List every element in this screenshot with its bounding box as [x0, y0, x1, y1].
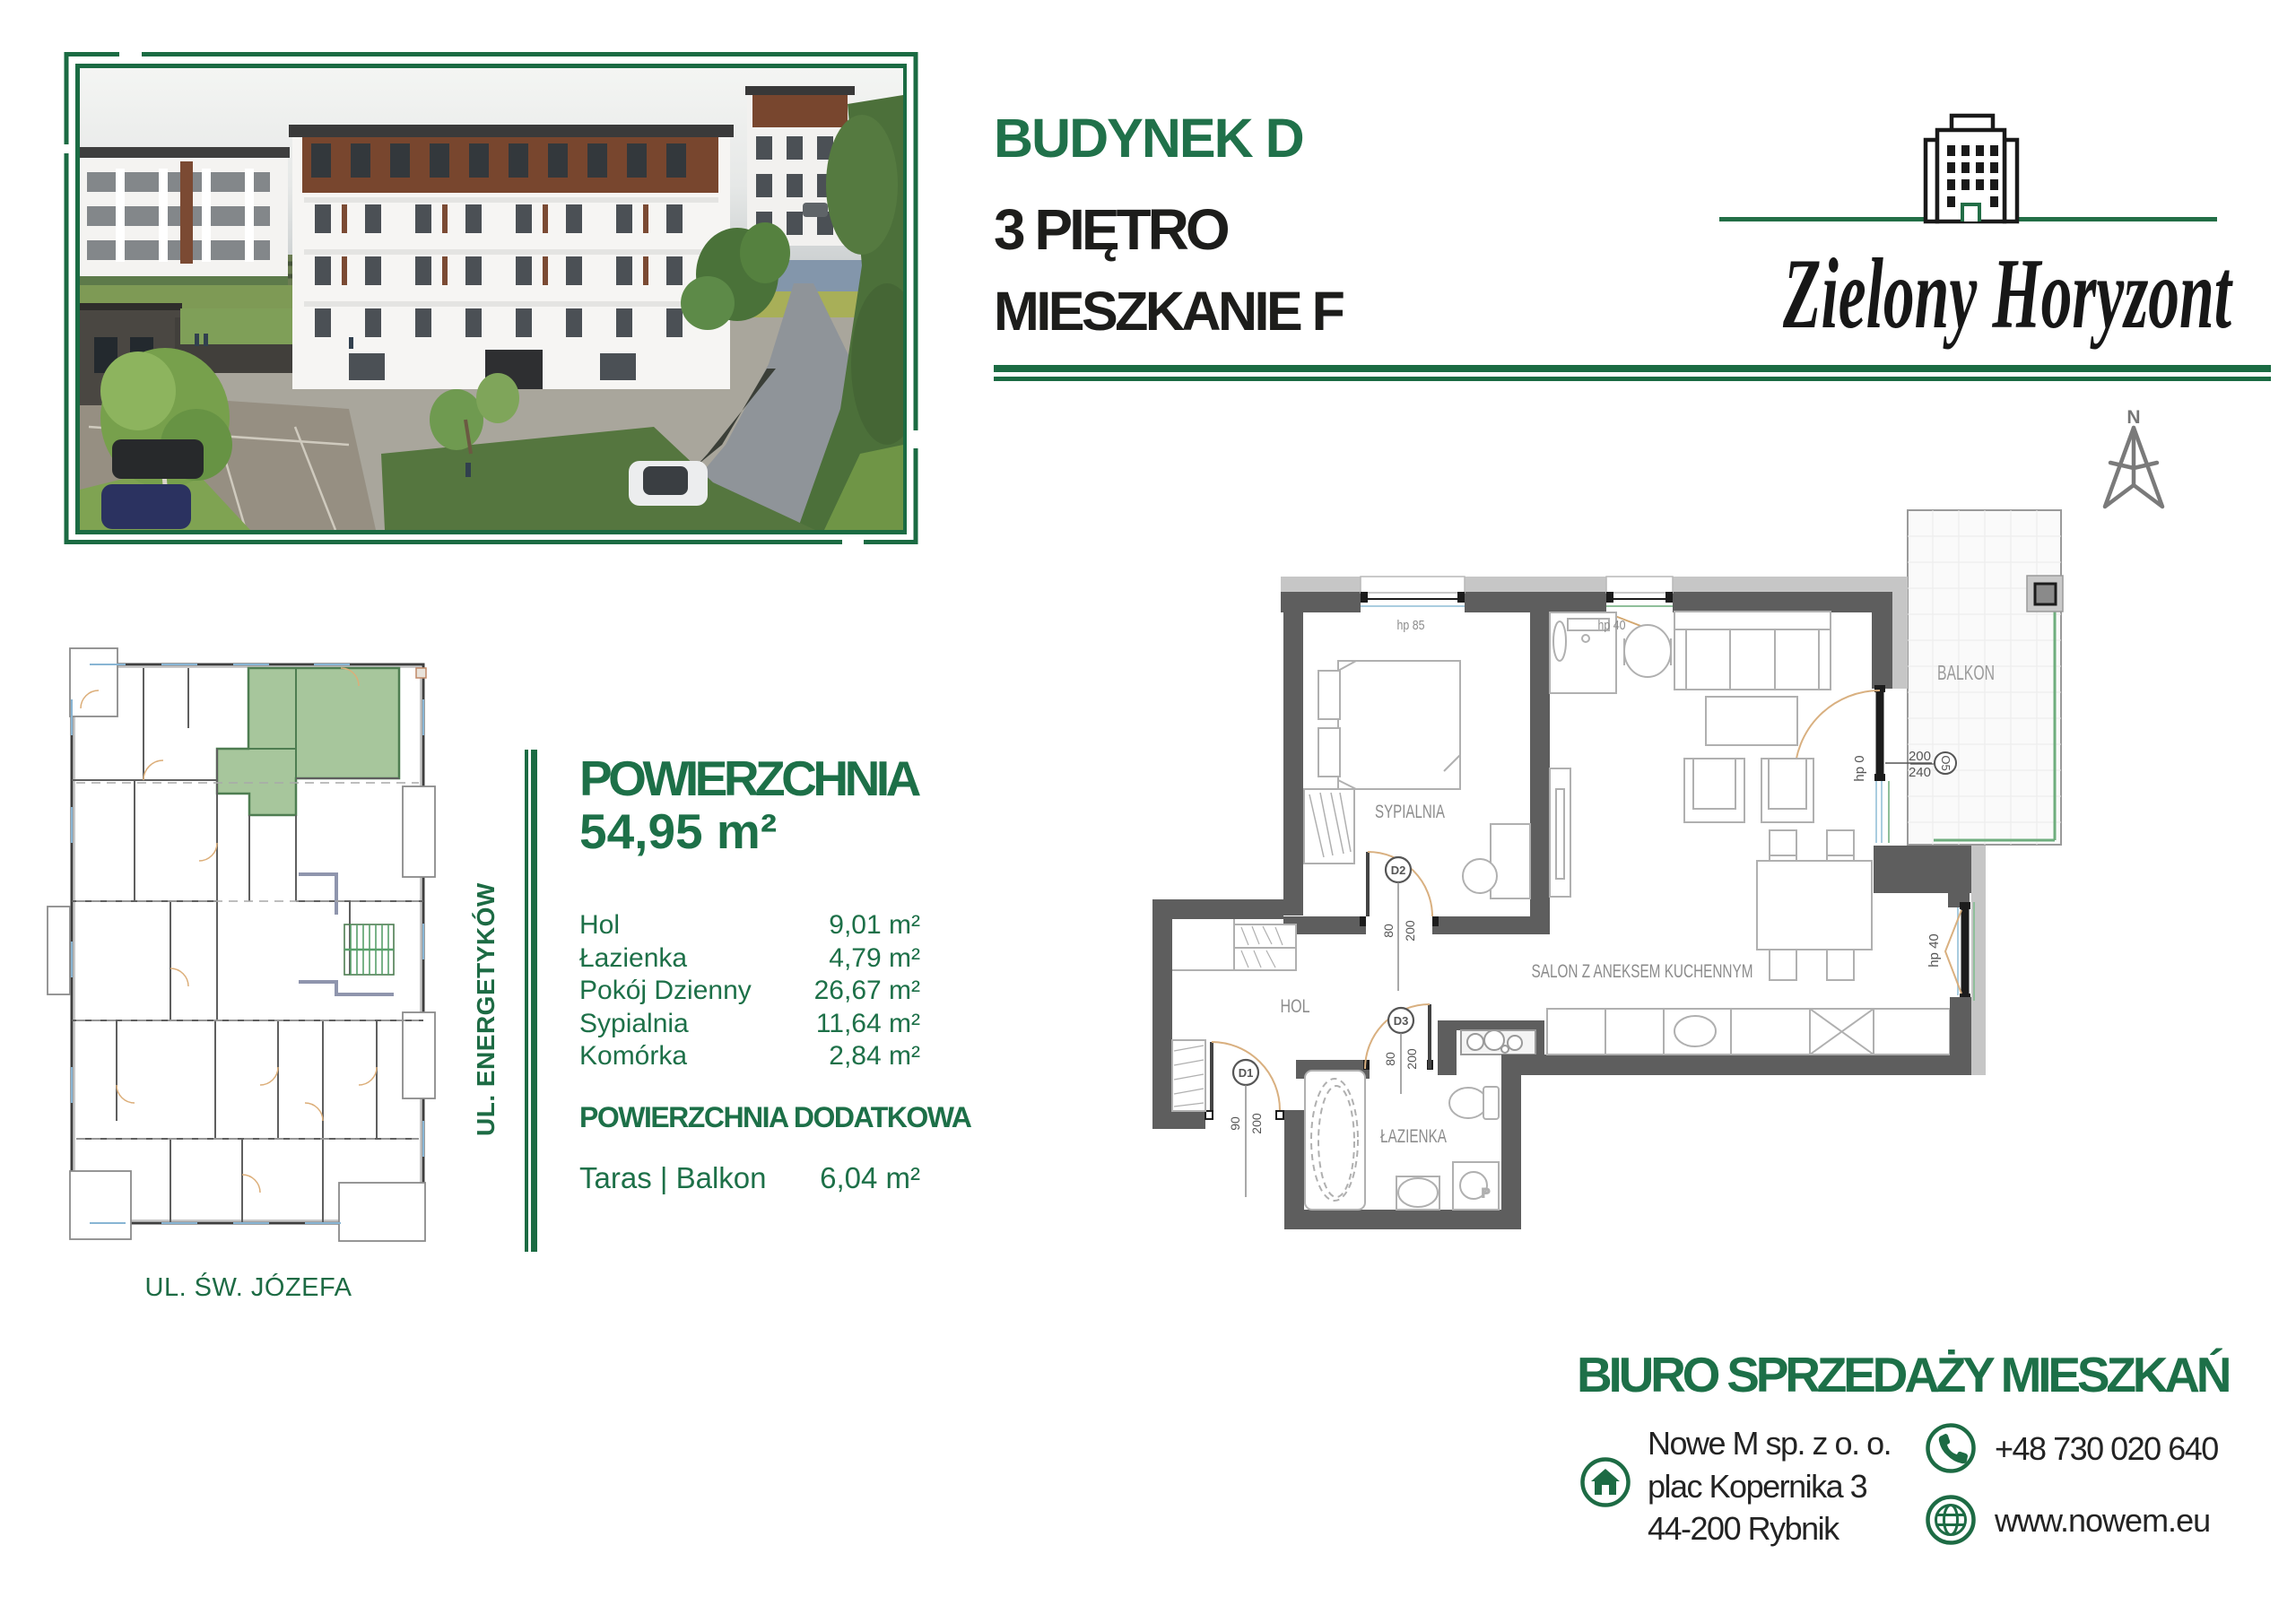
svg-text:ŁAZIENKA: ŁAZIENKA — [1380, 1126, 1447, 1147]
svg-text:Zielony Horyzont: Zielony Horyzont — [1782, 239, 2232, 350]
svg-text:D1: D1 — [1239, 1066, 1254, 1080]
svg-text:HOL: HOL — [1281, 996, 1310, 1017]
svg-text:hp 85: hp 85 — [1397, 618, 1425, 633]
svg-text:90: 90 — [1228, 1116, 1242, 1131]
svg-text:200: 200 — [1249, 1113, 1264, 1134]
svg-text:D2: D2 — [1391, 864, 1406, 877]
svg-text:80: 80 — [1381, 924, 1396, 938]
svg-text:N: N — [2126, 407, 2140, 428]
svg-text:200: 200 — [1405, 1048, 1419, 1070]
svg-text:240: 240 — [1909, 765, 1931, 780]
svg-text:SYPIALNIA: SYPIALNIA — [1375, 802, 1445, 822]
svg-text:hp 0: hp 0 — [1852, 755, 1867, 781]
svg-text:hp 40: hp 40 — [1598, 618, 1626, 633]
svg-text:hp 40: hp 40 — [1926, 933, 1942, 968]
svg-text:O5: O5 — [1939, 755, 1952, 770]
svg-text:SALON Z ANEKSEM KUCHENNYM: SALON Z ANEKSEM KUCHENNYM — [1532, 961, 1753, 982]
svg-text:80: 80 — [1383, 1052, 1397, 1066]
svg-text:D3: D3 — [1394, 1014, 1409, 1028]
svg-text:200: 200 — [1403, 920, 1417, 942]
svg-text:P: P — [1482, 1185, 1490, 1200]
svg-text:BALKON: BALKON — [1937, 661, 1995, 684]
svg-text:200: 200 — [1909, 749, 1931, 764]
